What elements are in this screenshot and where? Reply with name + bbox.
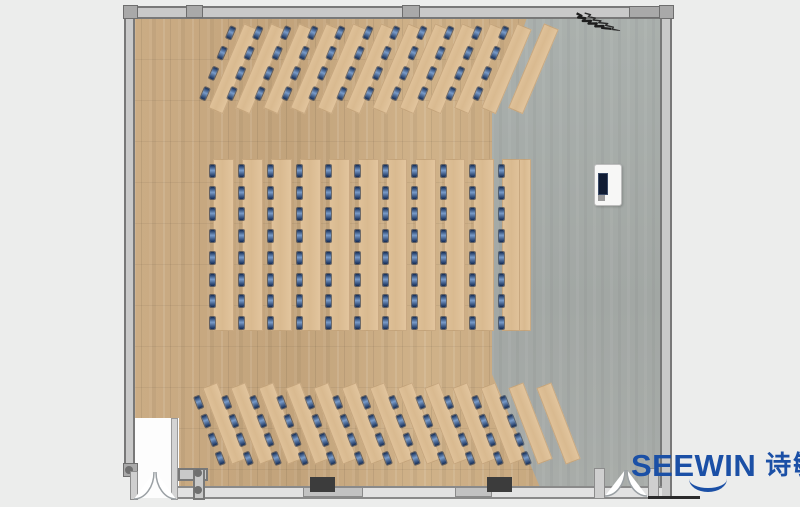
chair-mark	[210, 187, 215, 199]
chair-mark	[452, 415, 461, 428]
chair-mark	[327, 47, 336, 60]
chair-mark	[375, 433, 384, 446]
desk-strip	[415, 159, 436, 331]
brand-logo-text: SEEWIN	[631, 450, 756, 481]
chair-mark	[268, 317, 273, 329]
chair-mark	[436, 47, 445, 60]
chair-mark	[383, 295, 388, 307]
chair-mark	[345, 67, 354, 80]
chair-mark	[210, 165, 215, 177]
double-door-left	[132, 470, 178, 502]
chair-mark	[363, 26, 372, 39]
chair-mark	[326, 274, 331, 286]
desk-unit	[438, 159, 465, 331]
chair-mark	[239, 165, 244, 177]
chair-mark	[499, 165, 504, 177]
chair-mark	[297, 252, 302, 264]
chair-mark	[441, 295, 446, 307]
chair-mark	[444, 396, 453, 409]
chair-mark	[250, 396, 259, 409]
chair-mark	[463, 47, 472, 60]
chair-mark	[470, 252, 475, 264]
chair-mark	[326, 208, 331, 220]
chair-mark	[229, 415, 238, 428]
chair-mark	[383, 187, 388, 199]
floorplan-canvas: SEEWIN诗敏	[0, 0, 800, 507]
logo-underline	[648, 496, 700, 499]
desk-strip	[242, 159, 263, 331]
chair-mark	[368, 415, 377, 428]
wall-joint	[194, 486, 202, 494]
chair-mark	[470, 230, 475, 242]
brand-logo-chinese: 诗敏	[765, 452, 800, 478]
chair-mark	[209, 67, 218, 80]
desk-strip	[473, 159, 494, 331]
chair-mark	[291, 67, 300, 80]
chair-mark	[383, 274, 388, 286]
chair-mark	[297, 230, 302, 242]
chair-mark	[410, 452, 419, 465]
chair-mark	[355, 317, 360, 329]
chair-mark	[499, 187, 504, 199]
chair-mark	[499, 317, 504, 329]
chair-mark	[318, 67, 327, 80]
chair-mark	[419, 87, 428, 100]
chair-mark	[441, 187, 446, 199]
chair-mark	[355, 252, 360, 264]
chair-mark	[292, 433, 301, 446]
chair-mark	[441, 317, 446, 329]
chair-mark	[201, 415, 210, 428]
chair-mark	[499, 295, 504, 307]
chair-mark	[210, 252, 215, 264]
chair-mark	[409, 47, 418, 60]
wall-mullion-block	[186, 5, 203, 18]
chair-mark	[210, 295, 215, 307]
desk-layer	[0, 0, 800, 507]
chair-mark	[455, 67, 464, 80]
chair-mark	[373, 67, 382, 80]
chair-mark	[299, 452, 308, 465]
chair-mark	[438, 452, 447, 465]
chair-mark	[441, 274, 446, 286]
chair-mark	[499, 252, 504, 264]
chair-mark	[326, 317, 331, 329]
chair-mark	[239, 295, 244, 307]
wall-right	[660, 6, 672, 498]
chair-mark	[412, 187, 417, 199]
chair-mark	[355, 452, 364, 465]
chair-mark	[268, 187, 273, 199]
desk-unit	[236, 159, 263, 331]
desk-strip	[329, 159, 350, 331]
chair-mark	[239, 252, 244, 264]
chair-mark	[470, 274, 475, 286]
chair-mark	[355, 274, 360, 286]
desk-strip	[358, 159, 379, 331]
chair-mark	[459, 433, 468, 446]
chair-mark	[268, 165, 273, 177]
chair-mark	[441, 165, 446, 177]
chair-mark	[383, 165, 388, 177]
chair-mark	[412, 274, 417, 286]
chair-mark	[412, 252, 417, 264]
chair-mark	[239, 187, 244, 199]
chair-mark	[383, 208, 388, 220]
chair-mark	[383, 252, 388, 264]
wall-joint	[194, 469, 202, 477]
desk-strip	[444, 159, 465, 331]
chair-mark	[268, 274, 273, 286]
chair-mark	[268, 252, 273, 264]
chair-mark	[333, 396, 342, 409]
chair-mark	[239, 274, 244, 286]
chair-mark	[272, 47, 281, 60]
chair-mark	[417, 396, 426, 409]
desk-unit	[294, 159, 321, 331]
chair-mark	[236, 67, 245, 80]
chair-mark	[297, 274, 302, 286]
chair-mark	[391, 87, 400, 100]
chair-mark	[441, 252, 446, 264]
chair-mark	[236, 433, 245, 446]
chair-mark	[281, 26, 290, 39]
chair-mark	[383, 452, 392, 465]
chair-mark	[308, 26, 317, 39]
chair-mark	[355, 165, 360, 177]
chair-mark	[381, 47, 390, 60]
chair-mark	[210, 230, 215, 242]
chair-mark	[313, 415, 322, 428]
chair-mark	[441, 230, 446, 242]
chair-mark	[514, 433, 523, 446]
chair-mark	[412, 208, 417, 220]
chair-mark	[355, 208, 360, 220]
chair-mark	[427, 67, 436, 80]
chair-mark	[268, 295, 273, 307]
brand-logo: SEEWIN诗敏	[631, 450, 800, 481]
chair-mark	[239, 208, 244, 220]
desk-strip	[300, 159, 321, 331]
wall-left	[124, 6, 135, 467]
chair-mark	[320, 433, 329, 446]
chair-mark	[383, 230, 388, 242]
chair-mark	[417, 26, 426, 39]
chair-mark	[445, 26, 454, 39]
chair-mark	[389, 396, 398, 409]
chair-mark	[472, 396, 481, 409]
chair-mark	[412, 295, 417, 307]
window-band-bottom	[178, 486, 662, 499]
chair-mark	[216, 452, 225, 465]
chair-mark	[355, 230, 360, 242]
chair-mark	[424, 415, 433, 428]
chair-mark	[222, 396, 231, 409]
chair-mark	[278, 396, 287, 409]
chair-mark	[297, 187, 302, 199]
chair-mark	[210, 274, 215, 286]
chair-mark	[299, 47, 308, 60]
chair-mark	[326, 230, 331, 242]
chair-mark	[194, 396, 203, 409]
chair-mark	[264, 433, 273, 446]
wall-mullion-block	[659, 5, 674, 19]
chair-mark	[297, 295, 302, 307]
chair-mark	[285, 415, 294, 428]
chair-mark	[412, 317, 417, 329]
chair-mark	[348, 433, 357, 446]
desk-strip	[213, 159, 234, 331]
chair-mark	[310, 87, 319, 100]
chair-mark	[239, 230, 244, 242]
chair-mark	[473, 87, 482, 100]
chair-mark	[499, 208, 504, 220]
wall-mullion-block	[402, 5, 420, 18]
wall-mullion-block	[123, 5, 138, 19]
chair-mark	[522, 452, 531, 465]
desk-unit	[352, 159, 379, 331]
chair-mark	[354, 47, 363, 60]
chair-mark	[361, 396, 370, 409]
desk-unit	[409, 159, 436, 331]
chair-mark	[470, 208, 475, 220]
pillar	[310, 477, 335, 492]
chair-mark	[257, 415, 266, 428]
desk-strip	[519, 159, 531, 331]
chair-mark	[355, 187, 360, 199]
chair-mark	[403, 433, 412, 446]
chair-mark	[264, 67, 273, 80]
chair-mark	[326, 165, 331, 177]
chair-mark	[282, 87, 291, 100]
chair-mark	[210, 317, 215, 329]
chair-mark	[210, 208, 215, 220]
chair-mark	[479, 415, 488, 428]
desk-strip	[271, 159, 292, 331]
desk-unit	[467, 159, 494, 331]
chair-mark	[228, 87, 237, 100]
chair-mark	[400, 67, 409, 80]
chair-mark	[500, 396, 509, 409]
chair-mark	[268, 208, 273, 220]
chair-mark	[482, 67, 491, 80]
chair-mark	[364, 87, 373, 100]
podium-chip	[598, 195, 605, 201]
chair-mark	[271, 452, 280, 465]
chair-mark	[390, 26, 399, 39]
chair-mark	[218, 47, 227, 60]
chair-mark	[326, 187, 331, 199]
chair-mark	[507, 415, 516, 428]
podium	[594, 164, 622, 206]
chair-mark	[499, 26, 508, 39]
chair-mark	[487, 433, 496, 446]
chair-mark	[499, 274, 504, 286]
chair-mark	[239, 317, 244, 329]
chair-mark	[245, 47, 254, 60]
chair-mark	[412, 230, 417, 242]
desk-strip	[386, 159, 407, 331]
chair-mark	[335, 26, 344, 39]
chair-mark	[297, 317, 302, 329]
chair-mark	[470, 295, 475, 307]
chair-mark	[396, 415, 405, 428]
desk-unit	[323, 159, 350, 331]
chair-mark	[499, 230, 504, 242]
chair-mark	[446, 87, 455, 100]
chair-mark	[200, 87, 209, 100]
chair-mark	[268, 230, 273, 242]
chair-mark	[337, 87, 346, 100]
chair-mark	[472, 26, 481, 39]
chair-mark	[340, 415, 349, 428]
desk-unit	[380, 159, 407, 331]
chair-mark	[491, 47, 500, 60]
chair-mark	[253, 26, 262, 39]
chair-mark	[470, 165, 475, 177]
chair-mark	[494, 452, 503, 465]
podium-screen	[598, 173, 608, 195]
chair-mark	[226, 26, 235, 39]
chair-mark	[441, 208, 446, 220]
chair-mark	[355, 295, 360, 307]
chair-mark	[470, 317, 475, 329]
desk-unit	[265, 159, 292, 331]
chair-mark	[326, 295, 331, 307]
chair-mark	[470, 187, 475, 199]
chair-mark	[383, 317, 388, 329]
desk-unit	[207, 159, 234, 331]
chair-mark	[431, 433, 440, 446]
chair-mark	[255, 87, 264, 100]
chair-mark	[305, 396, 314, 409]
chair-mark	[466, 452, 475, 465]
chair-mark	[327, 452, 336, 465]
chair-mark	[297, 165, 302, 177]
chair-mark	[244, 452, 253, 465]
chair-mark	[209, 433, 218, 446]
chair-mark	[297, 208, 302, 220]
chair-mark	[412, 165, 417, 177]
chair-mark	[326, 252, 331, 264]
pillar	[487, 477, 512, 492]
